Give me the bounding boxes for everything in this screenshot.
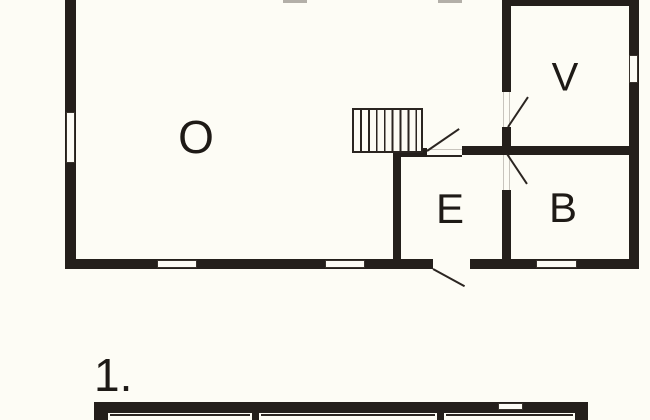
door-threshold-hall-dark [427,155,462,157]
wall-divider-top [502,0,511,92]
lower-interior-line-3 [446,414,573,416]
floor-plan-image: O V E B 1. [0,0,650,420]
window-right-wall [629,55,638,83]
crop-artifact-1 [283,0,307,3]
door-swing-entry [433,268,466,287]
lower-interior-line-1 [110,414,250,416]
floor-number-label: 1. [94,352,132,398]
door-jamb-b-left [503,155,504,190]
room-label-b: B [549,184,577,232]
window-bottom-1 [157,260,197,268]
wall-entry-left [393,155,401,259]
wall-interior-b [462,146,639,155]
wall-divider-bottom [502,190,511,259]
window-left-wall [66,112,75,163]
room-label-e: E [436,185,464,233]
door-swing-v [507,96,529,127]
wall-top-v [502,0,639,6]
door-threshold-hall-light [427,149,462,150]
staircase [352,108,423,153]
lower-window-top [498,403,523,410]
door-jamb-v-left [503,92,504,127]
lower-wall-interior-stub-1 [252,411,259,420]
wall-right [629,0,639,269]
room-label-v: V [552,56,579,101]
lower-wall-interior-stub-2 [437,411,444,420]
wall-bottom-left-segment [65,259,433,269]
lower-wall-right-stub [575,402,588,420]
window-bottom-3 [536,260,577,268]
crop-artifact-2 [438,0,462,3]
lower-interior-line-2 [261,414,435,416]
window-bottom-2 [325,260,365,268]
lower-wall-left-stub [94,402,108,420]
room-label-o: O [178,110,214,164]
